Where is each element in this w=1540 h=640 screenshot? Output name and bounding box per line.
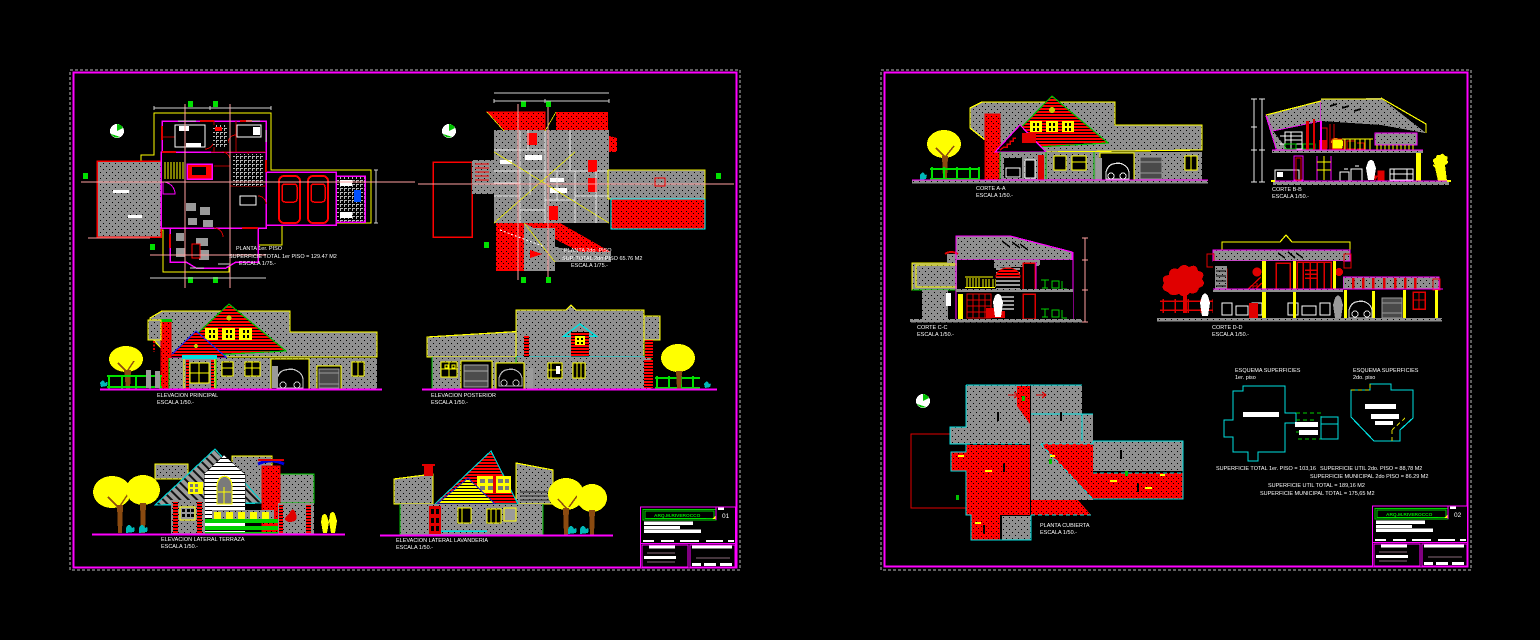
svg-text:CORTE C-C: CORTE C-C bbox=[917, 325, 947, 331]
svg-text:ESCALA 1/50.-: ESCALA 1/50.- bbox=[1040, 530, 1077, 536]
svg-text:PLANTA 1er. PISO: PLANTA 1er. PISO bbox=[236, 246, 283, 252]
svg-text:02: 02 bbox=[1454, 512, 1462, 519]
svg-text:ELEVACION POSTERIOR: ELEVACION POSTERIOR bbox=[431, 393, 496, 399]
svg-text:ESCALA 1/75.-: ESCALA 1/75.- bbox=[239, 261, 276, 267]
svg-text:SUP. TOTAL 2do PISO 65.76 M2: SUP. TOTAL 2do PISO 65.76 M2 bbox=[562, 256, 642, 262]
svg-text:ESQUEMA SUPERFICIES: ESQUEMA SUPERFICIES bbox=[1353, 368, 1419, 374]
svg-text:ELEVACION LATERAL LAVANDERIA: ELEVACION LATERAL LAVANDERIA bbox=[396, 538, 488, 544]
svg-text:ESCALA 1/50.-: ESCALA 1/50.- bbox=[431, 400, 468, 406]
svg-text:ESQUEMA SUPERFICIES: ESQUEMA SUPERFICIES bbox=[1235, 368, 1301, 374]
svg-text:PLANTA CUBIERTA: PLANTA CUBIERTA bbox=[1040, 523, 1090, 529]
svg-text:ELEVACION PRINCIPAL: ELEVACION PRINCIPAL bbox=[157, 393, 218, 399]
svg-text:SUPERFICIE TOTAL 1er PISO =: SUPERFICIE TOTAL 1er PISO = 129.47 M2 bbox=[229, 254, 337, 260]
svg-text:PLANTA 2do. PISO: PLANTA 2do. PISO bbox=[564, 248, 612, 254]
svg-text:ESCALA 1/50.-: ESCALA 1/50.- bbox=[917, 332, 954, 338]
svg-text:ESCALA 1/50.-: ESCALA 1/50.- bbox=[161, 544, 198, 550]
svg-text:ESCALA 1/50.-: ESCALA 1/50.- bbox=[1212, 332, 1249, 338]
svg-text:CORTE B-B: CORTE B-B bbox=[1272, 187, 1302, 193]
svg-text:SUPERFICIE UTIL TOTAL =: SUPERFICIE UTIL TOTAL = 189,16 M2 bbox=[1268, 483, 1365, 489]
svg-text:1er. piso: 1er. piso bbox=[1235, 375, 1256, 381]
svg-text:SUPERFICIE MUNICIPAL TOTAL: SUPERFICIE MUNICIPAL TOTAL = 175,65 M2 bbox=[1260, 491, 1375, 497]
svg-text:ESCALA 1/50.-: ESCALA 1/50.- bbox=[157, 400, 194, 406]
svg-text:SUPERFICIE MUNICIPAL 2do PIS: SUPERFICIE MUNICIPAL 2do PISO = 86.29 M2 bbox=[1310, 474, 1428, 480]
svg-text:SUPERFICIE TOTAL 1er. PISO: SUPERFICIE TOTAL 1er. PISO = 103,16 bbox=[1216, 466, 1316, 472]
svg-text:ESCALA 1/75.-: ESCALA 1/75.- bbox=[571, 263, 608, 269]
svg-text:CORTE A-A: CORTE A-A bbox=[976, 186, 1006, 192]
svg-text:ESCALA 1/50.-: ESCALA 1/50.- bbox=[976, 193, 1013, 199]
svg-text:ESCALA 1/50.-: ESCALA 1/50.- bbox=[1272, 194, 1309, 200]
svg-text:ESCALA 1/50.-: ESCALA 1/50.- bbox=[396, 545, 433, 551]
svg-text:ELEVACION LATERAL TERRAZA: ELEVACION LATERAL TERRAZA bbox=[161, 537, 245, 543]
svg-text:CORTE D-D: CORTE D-D bbox=[1212, 325, 1242, 331]
svg-text:SUPERFICIE UTIL 2do. PISO =: SUPERFICIE UTIL 2do. PISO = 88,78 M2 bbox=[1320, 466, 1422, 472]
svg-text:2do. piso: 2do. piso bbox=[1353, 375, 1375, 381]
svg-text:01: 01 bbox=[722, 513, 730, 520]
